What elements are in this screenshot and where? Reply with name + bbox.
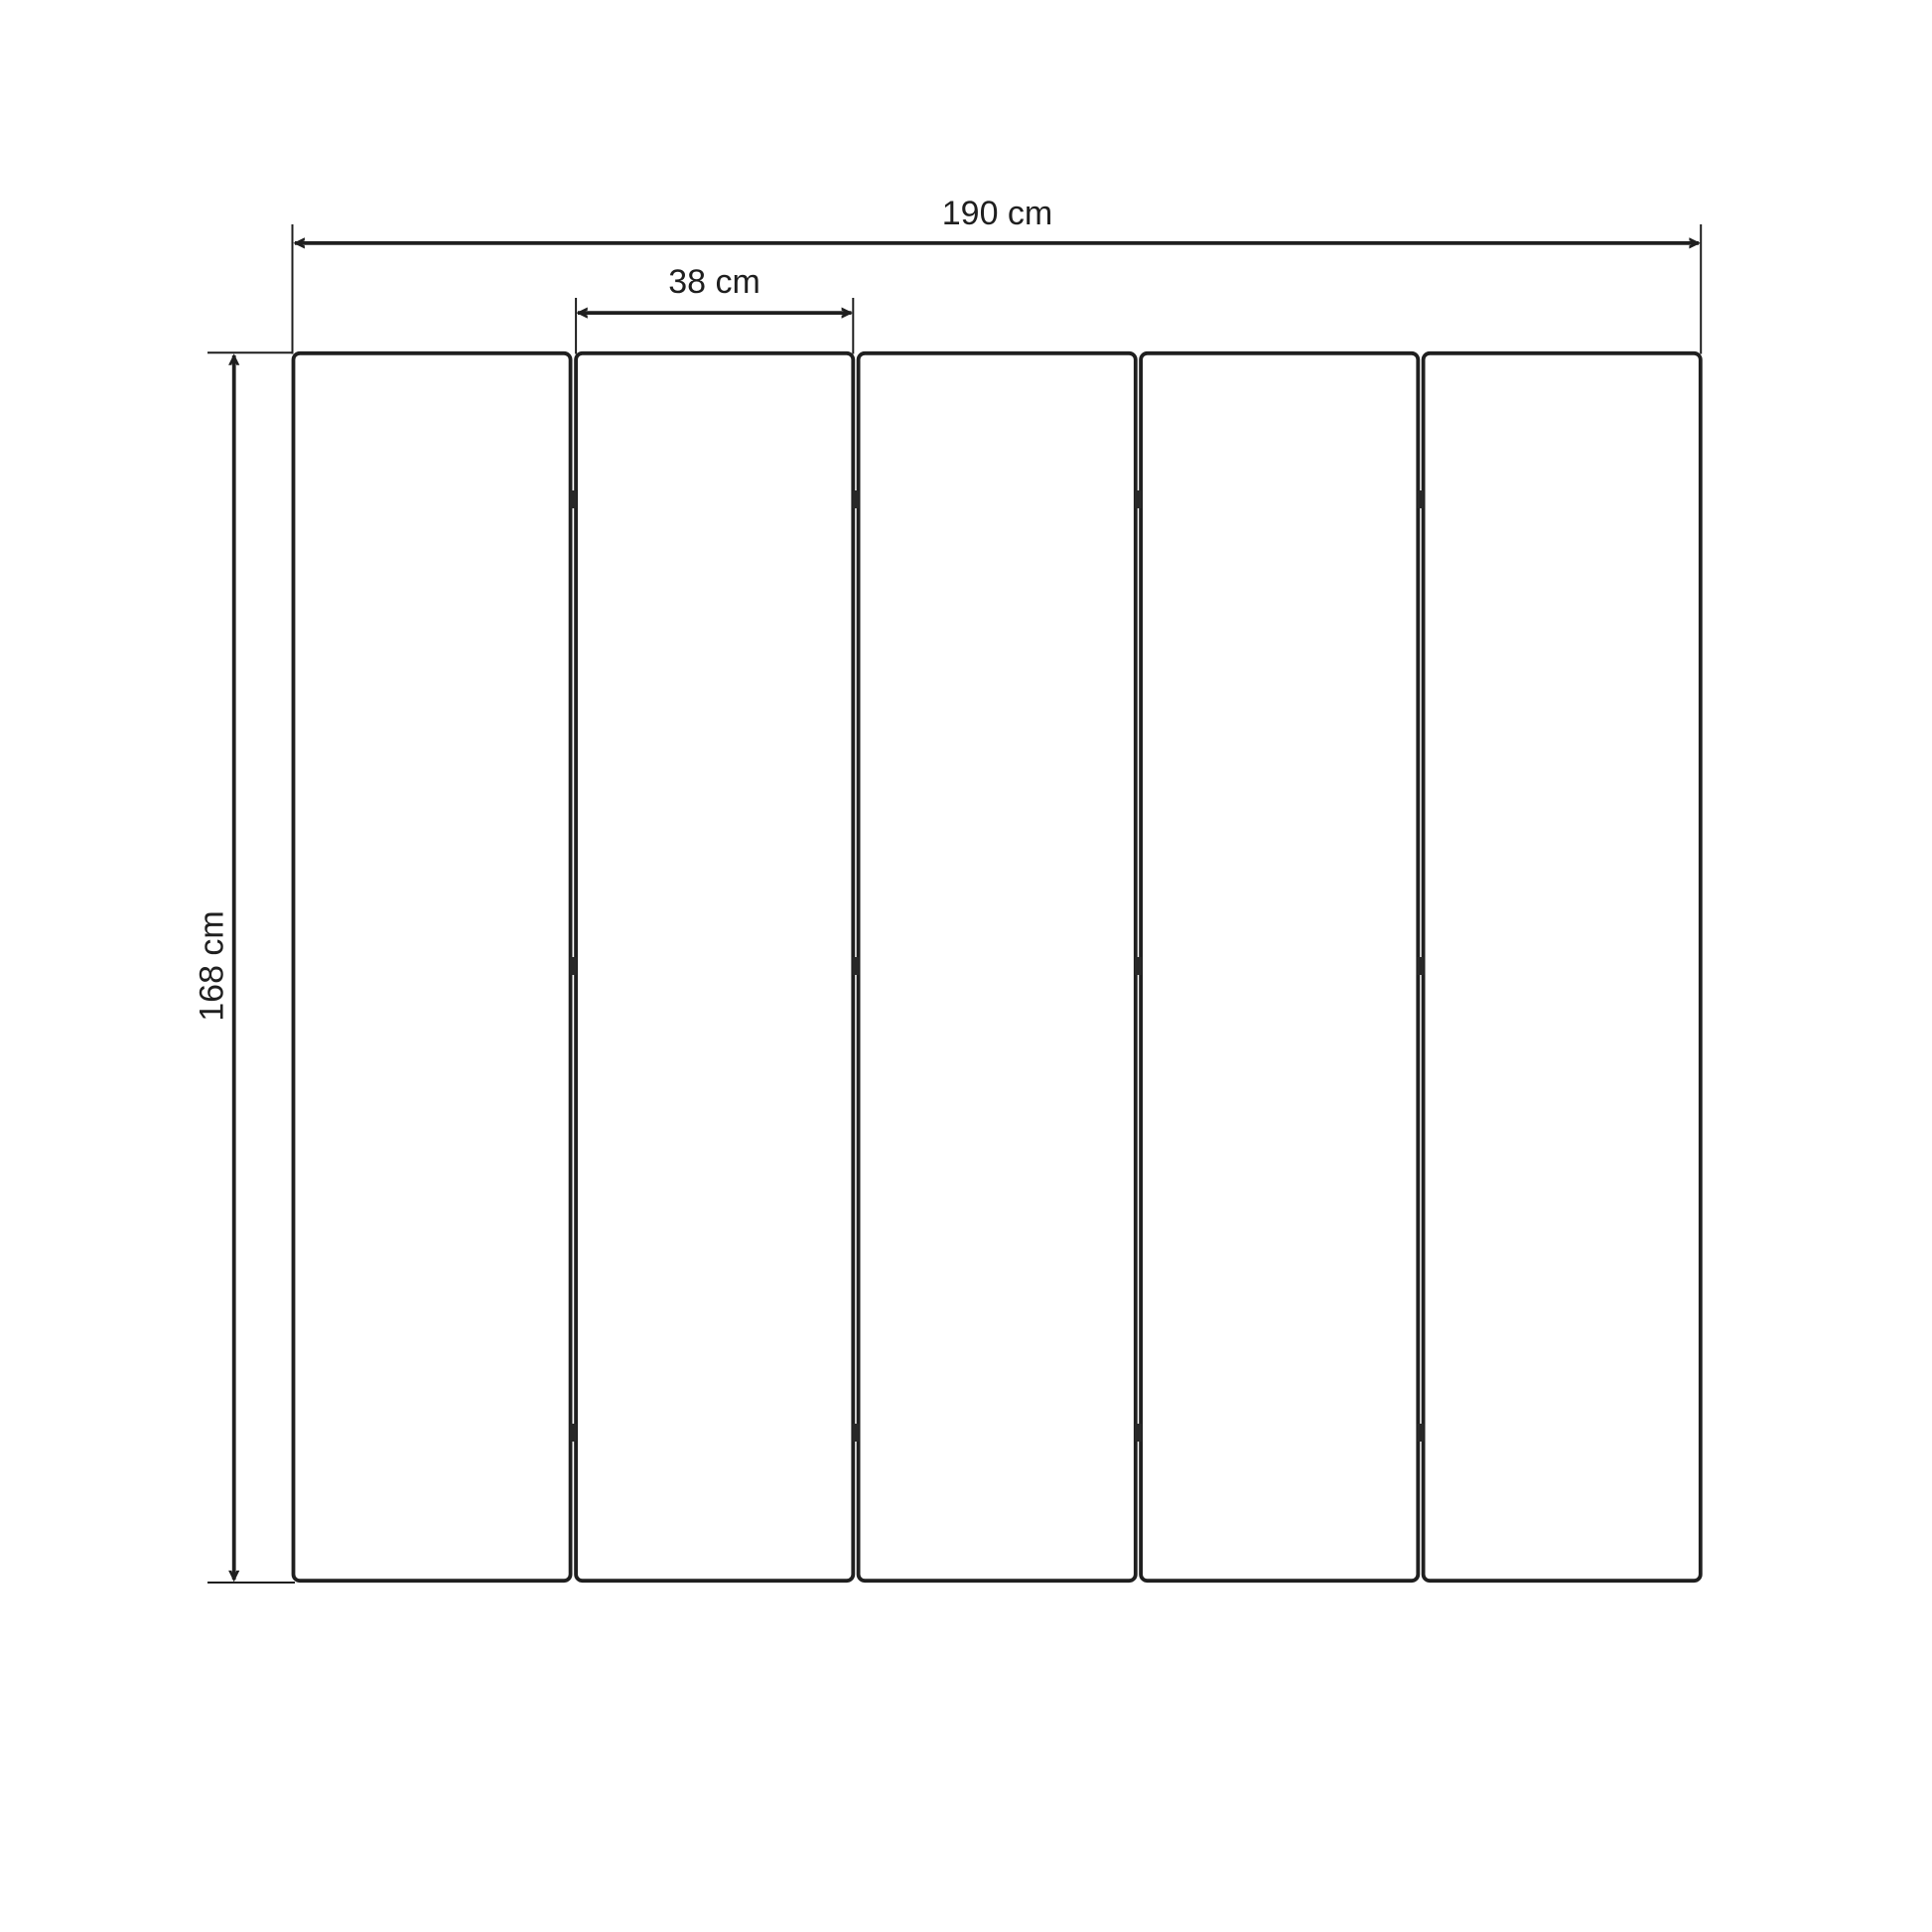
svg-text:190 cm: 190 cm <box>942 195 1053 232</box>
svg-text:168 cm: 168 cm <box>194 910 231 1022</box>
svg-text:38 cm: 38 cm <box>668 263 760 301</box>
